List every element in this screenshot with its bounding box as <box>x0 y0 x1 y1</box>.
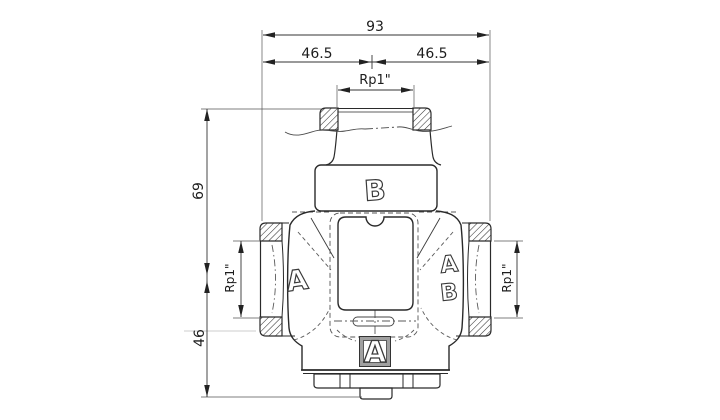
dim-right-thread-label: Rp1" <box>500 263 514 292</box>
dim-half-width-left-label: 46.5 <box>301 46 332 62</box>
dim-height-46-label: 46 <box>192 329 208 347</box>
dim-overall-width-label: 93 <box>366 19 384 35</box>
bottom-port-badge: A <box>360 335 391 369</box>
port-label-right-a: A <box>439 251 460 279</box>
dim-left-thread-label: Rp1" <box>223 263 237 292</box>
extension-lines <box>184 30 523 397</box>
valve-drawing-canvas: A B A A B <box>0 0 720 420</box>
dim-half-width-right-label: 46.5 <box>416 46 447 62</box>
dim-top-thread-label: Rp1" <box>359 73 391 88</box>
port-label-right-b: B <box>439 279 459 307</box>
right-port <box>456 223 491 336</box>
port-label-top: B <box>363 173 387 207</box>
dim-height-69-label: 69 <box>191 182 207 200</box>
technical-drawing-page: A B A A B <box>0 0 720 420</box>
top-port <box>285 108 452 135</box>
port-label-left: A <box>284 263 310 299</box>
faceplate <box>330 213 418 337</box>
port-label-bottom: A <box>364 335 387 369</box>
